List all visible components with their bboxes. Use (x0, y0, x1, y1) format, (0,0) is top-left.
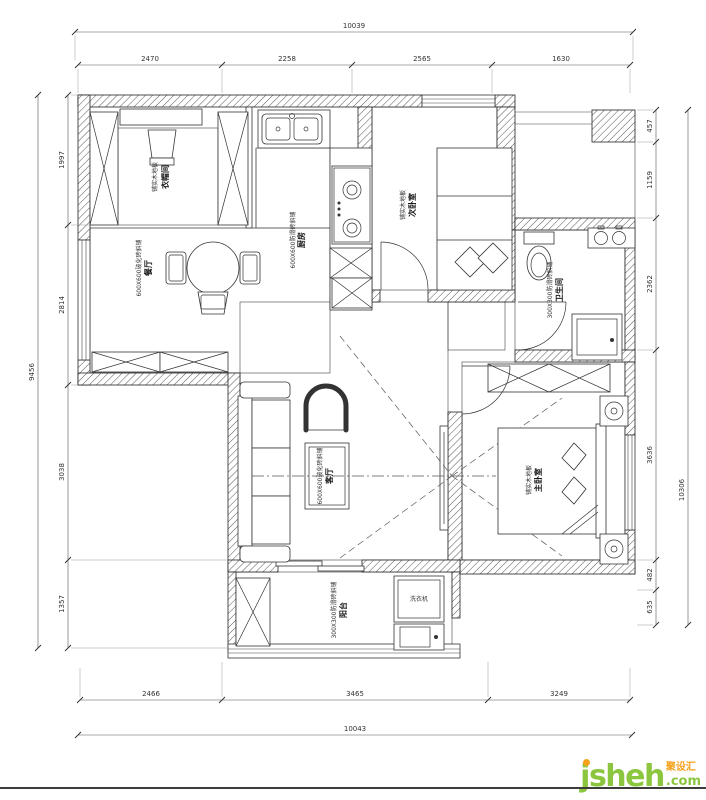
dim-top-seg-2: 2258 (278, 55, 296, 63)
gas-stove (332, 166, 372, 244)
dimension-top: 10039 2470 2258 2565 1630 (72, 22, 636, 93)
cloakroom-finish-label: 铺实木地板 (151, 162, 159, 192)
fridge-cabinet (330, 248, 372, 308)
kitchen-finish-label: 600X600防滑砖斜铺 (289, 211, 297, 268)
page-bottom-rule (0, 787, 706, 789)
dim-bottom-total: 10043 (344, 725, 366, 733)
bathroom-furniture (524, 226, 635, 360)
dimension-bottom: 2466 3465 3249 10043 (75, 662, 635, 738)
dining-chair-right (240, 252, 260, 284)
shower-tray (572, 314, 622, 360)
desk (120, 109, 202, 125)
nightstand-bottom (600, 534, 628, 564)
wall-top-column (495, 95, 515, 107)
kitchen-sink (262, 114, 322, 145)
floor-plan-drawing: 洗衣机 衣帽间 铺实木地板 厨房 600X600 (0, 0, 706, 800)
mop-sink (394, 624, 444, 650)
window-dining-left (78, 240, 90, 360)
door-bathroom (518, 302, 566, 350)
dim-left-seg-1: 1997 (58, 151, 66, 169)
secondary-bedroom-label: 次卧室 (407, 193, 417, 217)
dim-right-seg-4: 3636 (646, 446, 654, 464)
wall-bedroom2-bottom-left (372, 290, 380, 302)
washing-machine-label: 洗衣机 (410, 595, 428, 603)
watermark-column: 聚设汇 .com (666, 763, 701, 788)
wardrobe-right (218, 112, 248, 225)
wall-master-left (448, 412, 462, 560)
dim-right-total: 10306 (678, 478, 686, 501)
dining-finish-label: 600X600玻化砖斜铺 (135, 239, 143, 296)
dim-top-seg-3: 2565 (413, 55, 431, 63)
nightstand-top (600, 396, 628, 426)
dim-right-seg-2: 1159 (646, 171, 654, 189)
sliding-door-balcony (276, 561, 364, 571)
dim-right-seg-3: 2362 (646, 275, 654, 293)
hallway-floor (448, 302, 505, 350)
balcony-cabinet (236, 578, 270, 646)
dining-chair-bottom (198, 292, 228, 314)
wall-living-bottom-right (362, 560, 460, 572)
kitchen-label: 厨房 (296, 232, 306, 248)
wall-left-upper (78, 95, 90, 240)
window-master-right (625, 435, 635, 530)
cloakroom-label: 衣帽间 (160, 165, 170, 189)
tv-cabinet (440, 426, 448, 530)
dining-label: 餐厅 (143, 260, 153, 277)
door-secondary-bedroom (381, 242, 428, 290)
dim-right-seg-6: 635 (646, 600, 654, 613)
master-bedroom-finish-label: 铺实木地板 (525, 465, 533, 495)
wall-balcony-left (228, 572, 236, 652)
kitchen-furniture (258, 110, 372, 310)
washing-machine: 洗衣机 (394, 576, 444, 622)
window-bedroom2-top (422, 95, 495, 107)
armchair (306, 386, 346, 430)
dim-bottom-seg-1: 2466 (142, 690, 160, 698)
dining-table (187, 242, 239, 294)
wall-dining-bottom (78, 373, 230, 385)
dim-bottom-seg-2: 3465 (346, 690, 364, 698)
master-bedroom-label: 主卧室 (533, 468, 543, 492)
dim-top-seg-1: 2470 (141, 55, 159, 63)
wall-balcony-right (452, 572, 460, 618)
dim-left-seg-4: 1357 (58, 595, 66, 613)
master-bed (498, 424, 606, 538)
bathroom-label: 卫生间 (554, 278, 564, 302)
dim-right-seg-1: 457 (646, 119, 654, 132)
master-bedroom-furniture (488, 364, 628, 564)
balcony-label: 阳台 (338, 602, 348, 618)
dining-furniture (92, 242, 260, 372)
bed-secondary (437, 148, 512, 290)
master-wardrobe (488, 364, 610, 392)
wall-bedroom2-bottom-right (428, 290, 515, 302)
secondary-bedroom-finish-label: 铺实木地板 (399, 190, 407, 220)
watermark-badge: 聚设汇 (666, 763, 696, 773)
dim-left-seg-2: 2814 (58, 296, 66, 314)
dim-top-seg-4: 1630 (552, 55, 570, 63)
floor-plan-page: 洗衣机 衣帽间 铺实木地板 厨房 600X600 (0, 0, 706, 800)
balcony-finish-label: 300X300防滑砖斜铺 (330, 581, 338, 638)
dim-top-total: 10039 (343, 22, 365, 30)
dim-bottom-seg-3: 3249 (550, 690, 568, 698)
bathroom-finish-label: 300X300防滑砖斜铺 (546, 261, 554, 318)
wall-top-main (78, 95, 422, 107)
wardrobe-left (90, 112, 118, 225)
wall-corner-top-right (592, 110, 635, 142)
dim-right-seg-5: 482 (646, 568, 654, 581)
dim-left-total: 9456 (28, 363, 36, 381)
living-label: 客厅 (324, 468, 334, 485)
washbasin (588, 226, 635, 248)
sofa (238, 382, 290, 562)
wall-bathroom-right (625, 230, 635, 360)
dim-left-seg-3: 3038 (58, 463, 66, 481)
dining-sideboard (92, 352, 228, 372)
dining-chair-left (166, 252, 186, 284)
desk-chair (148, 130, 176, 165)
dimension-right: 457 1159 2362 3636 482 635 10306 (637, 107, 691, 628)
living-finish-label: 600X600玻化砖斜铺 (316, 447, 324, 504)
secondary-bedroom-furniture (437, 148, 512, 290)
